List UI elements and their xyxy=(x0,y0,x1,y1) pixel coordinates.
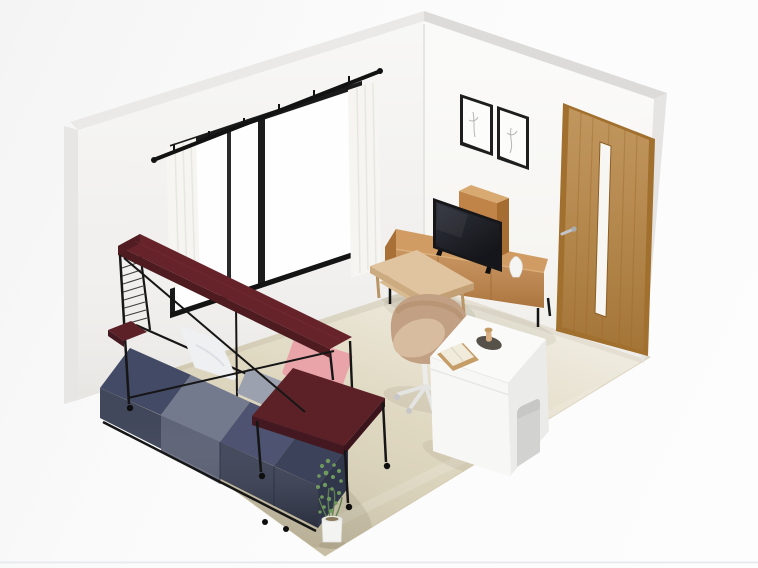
room-render-canvas xyxy=(0,0,758,568)
door-handle-rosette xyxy=(571,226,576,231)
window-stile xyxy=(227,127,231,296)
curtain-rail-finial-left xyxy=(151,157,157,163)
curtain-rail-finial-right xyxy=(377,68,383,74)
bed-caster-front-2 xyxy=(283,526,289,532)
desk[interactable] xyxy=(430,315,549,477)
bed-caster-left xyxy=(127,405,133,411)
page-bottom-border xyxy=(0,562,758,564)
bed-caster-front-1 xyxy=(262,519,268,525)
desk-figurine-cap xyxy=(485,328,493,333)
left-wall-edge xyxy=(64,126,78,404)
side-table-caster-3 xyxy=(384,463,390,469)
chair-caster-2 xyxy=(406,408,412,414)
side-table-caster-2 xyxy=(346,504,352,510)
bed-post-middle xyxy=(236,304,237,398)
plant-pot-soil xyxy=(326,517,339,521)
scene-svg xyxy=(0,0,758,568)
door[interactable] xyxy=(556,103,655,356)
vase[interactable] xyxy=(510,257,523,277)
chair-caster-1 xyxy=(394,394,400,400)
window-mullion xyxy=(258,116,265,286)
plant-pot xyxy=(322,519,342,542)
side-table-caster-1 xyxy=(259,473,265,479)
